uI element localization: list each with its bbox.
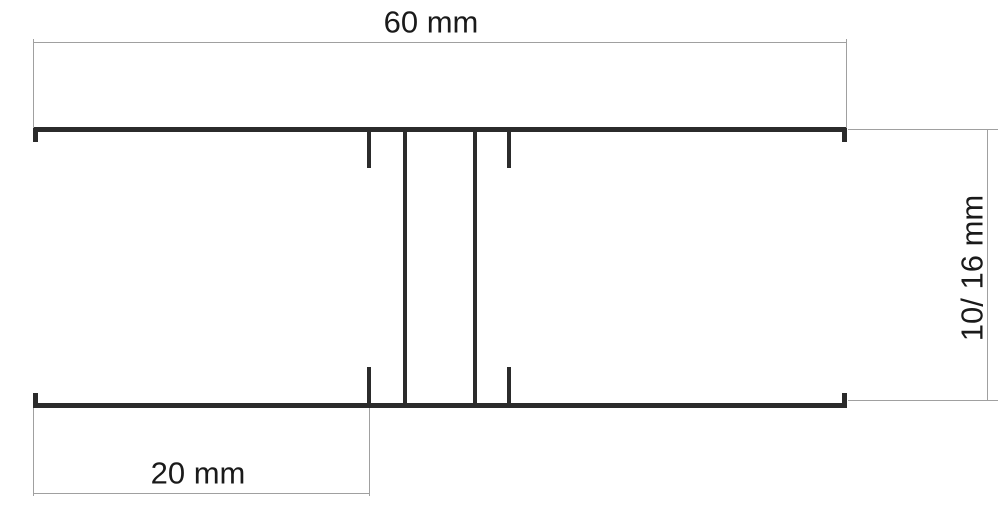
dim-offset-line xyxy=(33,493,370,494)
dim-width-extension-left xyxy=(33,39,34,128)
bottom-flange-right-lip xyxy=(842,393,847,408)
dim-height-label: 10/ 16 mm xyxy=(956,195,991,341)
dim-width-label: 60 mm xyxy=(384,5,479,40)
dim-height-extension-bottom xyxy=(848,400,998,401)
top-flange xyxy=(33,127,847,132)
profile-cross-section-drawing: 60 mm 10/ 16 mm 20 mm xyxy=(0,0,1000,525)
top-flange-right-lip xyxy=(842,127,847,142)
top-flange-left-lip xyxy=(33,127,38,142)
dim-width-line xyxy=(33,42,847,43)
web-left-wall xyxy=(403,127,407,408)
web-right-wall xyxy=(473,127,477,408)
dim-height-extension-top xyxy=(848,129,998,130)
bottom-flange-left-lip xyxy=(33,393,38,408)
dim-offset-extension-right xyxy=(369,408,370,496)
bottom-rib-left xyxy=(367,367,371,408)
bottom-rib-right xyxy=(507,367,511,408)
dim-offset-label: 20 mm xyxy=(151,456,246,491)
top-rib-right xyxy=(507,127,511,168)
dim-width-extension-right xyxy=(846,39,847,128)
top-rib-left xyxy=(367,127,371,168)
bottom-flange xyxy=(33,403,847,408)
dim-offset-extension-left xyxy=(33,408,34,496)
